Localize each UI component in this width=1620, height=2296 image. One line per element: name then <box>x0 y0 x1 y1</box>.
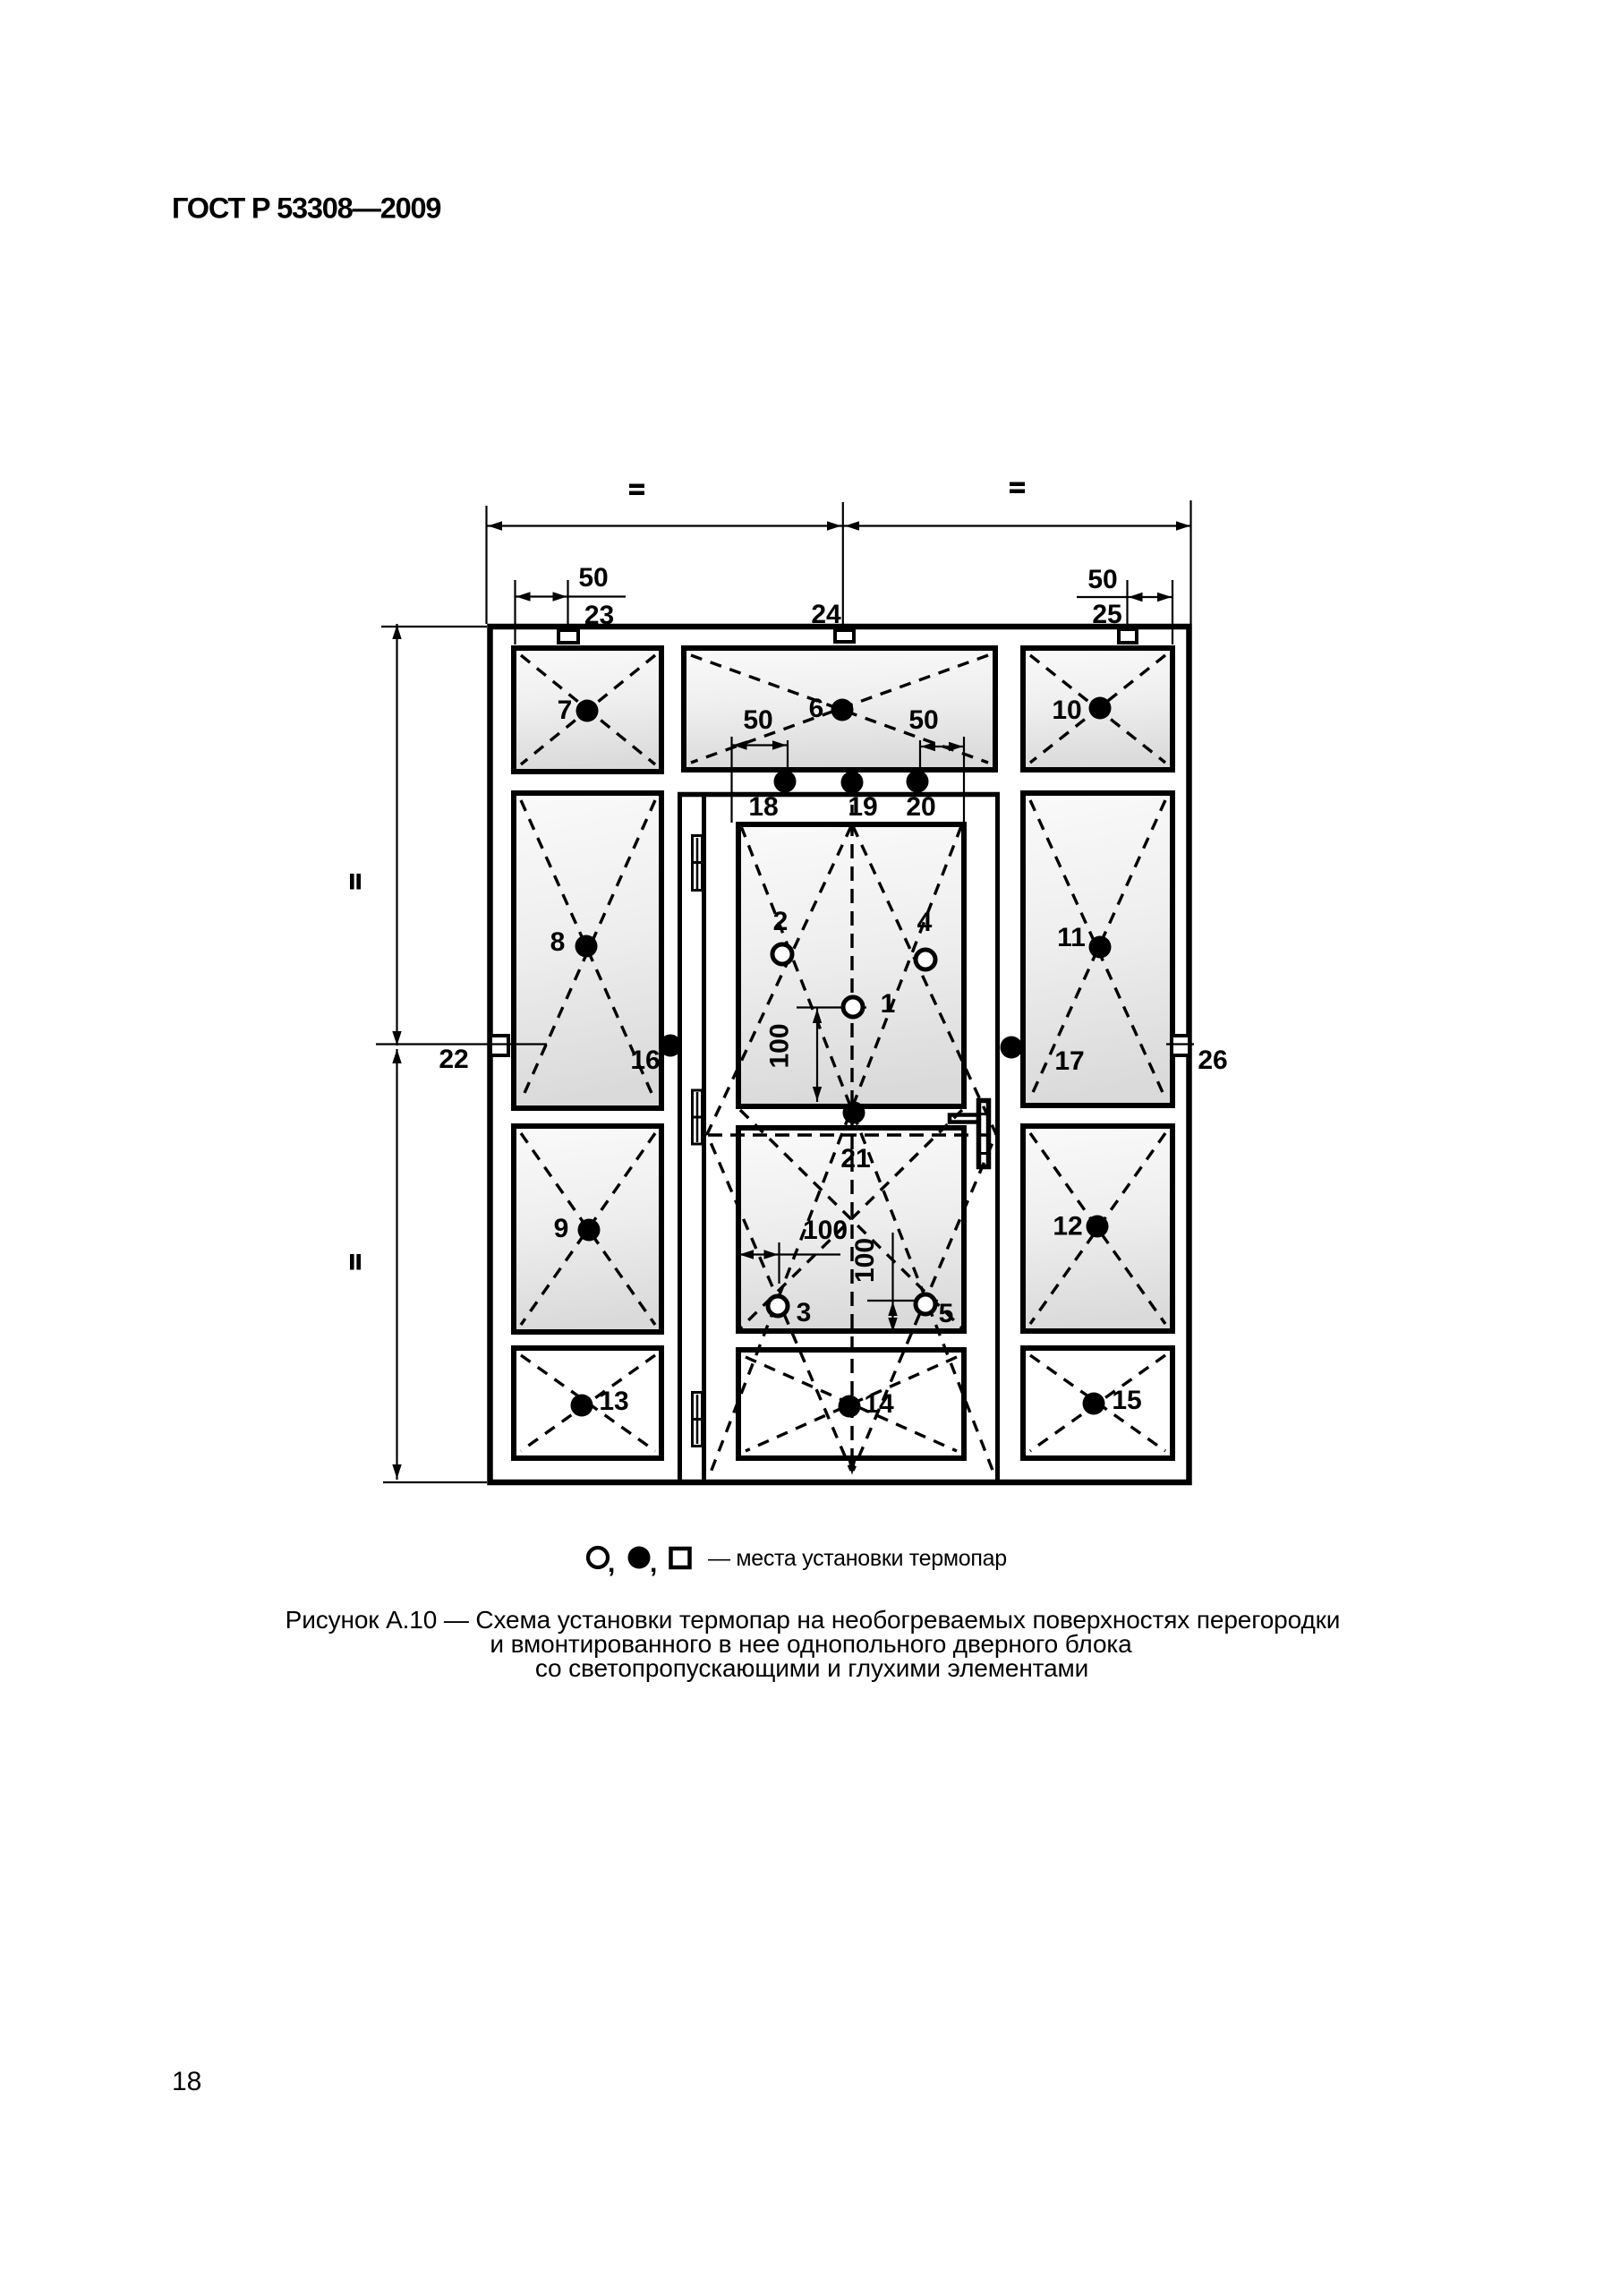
svg-text:17: 17 <box>1054 1046 1084 1076</box>
svg-text:4: 4 <box>917 908 933 937</box>
svg-text:25: 25 <box>1092 600 1121 629</box>
svg-text:— места установки термопар: — места установки термопар <box>708 1546 1007 1571</box>
svg-text:10: 10 <box>1052 696 1081 725</box>
svg-text:,: , <box>608 1549 615 1578</box>
svg-text:15: 15 <box>1112 1386 1141 1415</box>
svg-text:,: , <box>650 1549 657 1578</box>
svg-text:12: 12 <box>1053 1212 1082 1242</box>
svg-text:5: 5 <box>939 1299 954 1328</box>
svg-text:19: 19 <box>848 792 877 822</box>
svg-text:9: 9 <box>554 1214 569 1243</box>
svg-text:3: 3 <box>797 1298 812 1327</box>
svg-text:18: 18 <box>748 792 778 822</box>
svg-text:50: 50 <box>1087 565 1117 594</box>
svg-text:со светопропускающими и глухим: со светопропускающими и глухими элемента… <box>535 1654 1088 1682</box>
svg-text:6: 6 <box>809 694 824 723</box>
svg-text:7: 7 <box>558 696 573 725</box>
svg-text:26: 26 <box>1198 1046 1227 1075</box>
svg-text:8: 8 <box>550 927 566 957</box>
svg-text:100: 100 <box>803 1216 848 1245</box>
svg-text:22: 22 <box>439 1045 468 1074</box>
svg-text:50: 50 <box>908 705 938 735</box>
svg-text:20: 20 <box>906 792 935 822</box>
svg-text:24: 24 <box>811 600 841 629</box>
svg-text:50: 50 <box>743 705 772 735</box>
svg-text:13: 13 <box>599 1387 628 1416</box>
svg-text:1: 1 <box>881 989 896 1019</box>
svg-text:100: 100 <box>765 1023 795 1068</box>
svg-text:2: 2 <box>773 907 789 936</box>
svg-text:50: 50 <box>578 563 608 593</box>
svg-text:23: 23 <box>584 601 614 630</box>
svg-text:11: 11 <box>1057 923 1086 952</box>
svg-text:ГОСТ Р 53308—2009: ГОСТ Р 53308—2009 <box>172 192 440 225</box>
svg-text:14: 14 <box>864 1389 894 1419</box>
svg-text:18: 18 <box>172 2067 201 2096</box>
svg-text:100: 100 <box>850 1238 880 1283</box>
svg-text:16: 16 <box>630 1046 660 1075</box>
svg-text:21: 21 <box>840 1144 870 1174</box>
